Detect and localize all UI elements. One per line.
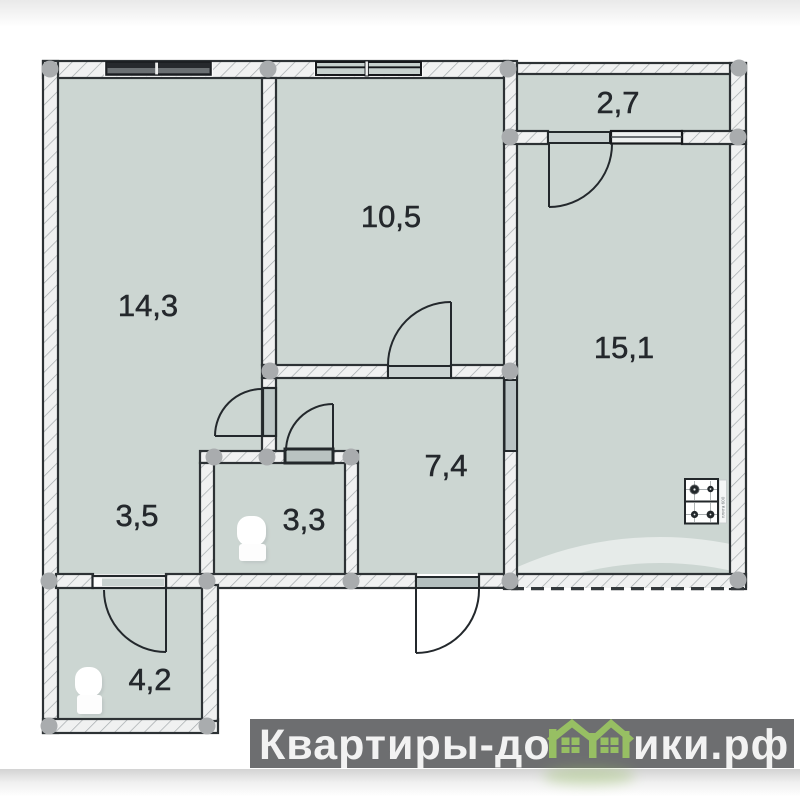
svg-text:10,5: 10,5 — [361, 199, 421, 234]
svg-text:ики.рф: ики.рф — [633, 721, 789, 769]
svg-text:3,5: 3,5 — [115, 498, 158, 533]
svg-text:3,3: 3,3 — [282, 502, 325, 537]
svg-text:плита 600: плита 600 — [721, 496, 726, 518]
svg-text:2,7: 2,7 — [596, 85, 639, 120]
svg-text:4,2: 4,2 — [128, 662, 171, 697]
svg-text:14,3: 14,3 — [118, 288, 178, 323]
svg-text:7,4: 7,4 — [424, 448, 467, 483]
svg-text:Квартиры-до: Квартиры-до — [259, 721, 551, 769]
svg-text:15,1: 15,1 — [594, 330, 654, 365]
